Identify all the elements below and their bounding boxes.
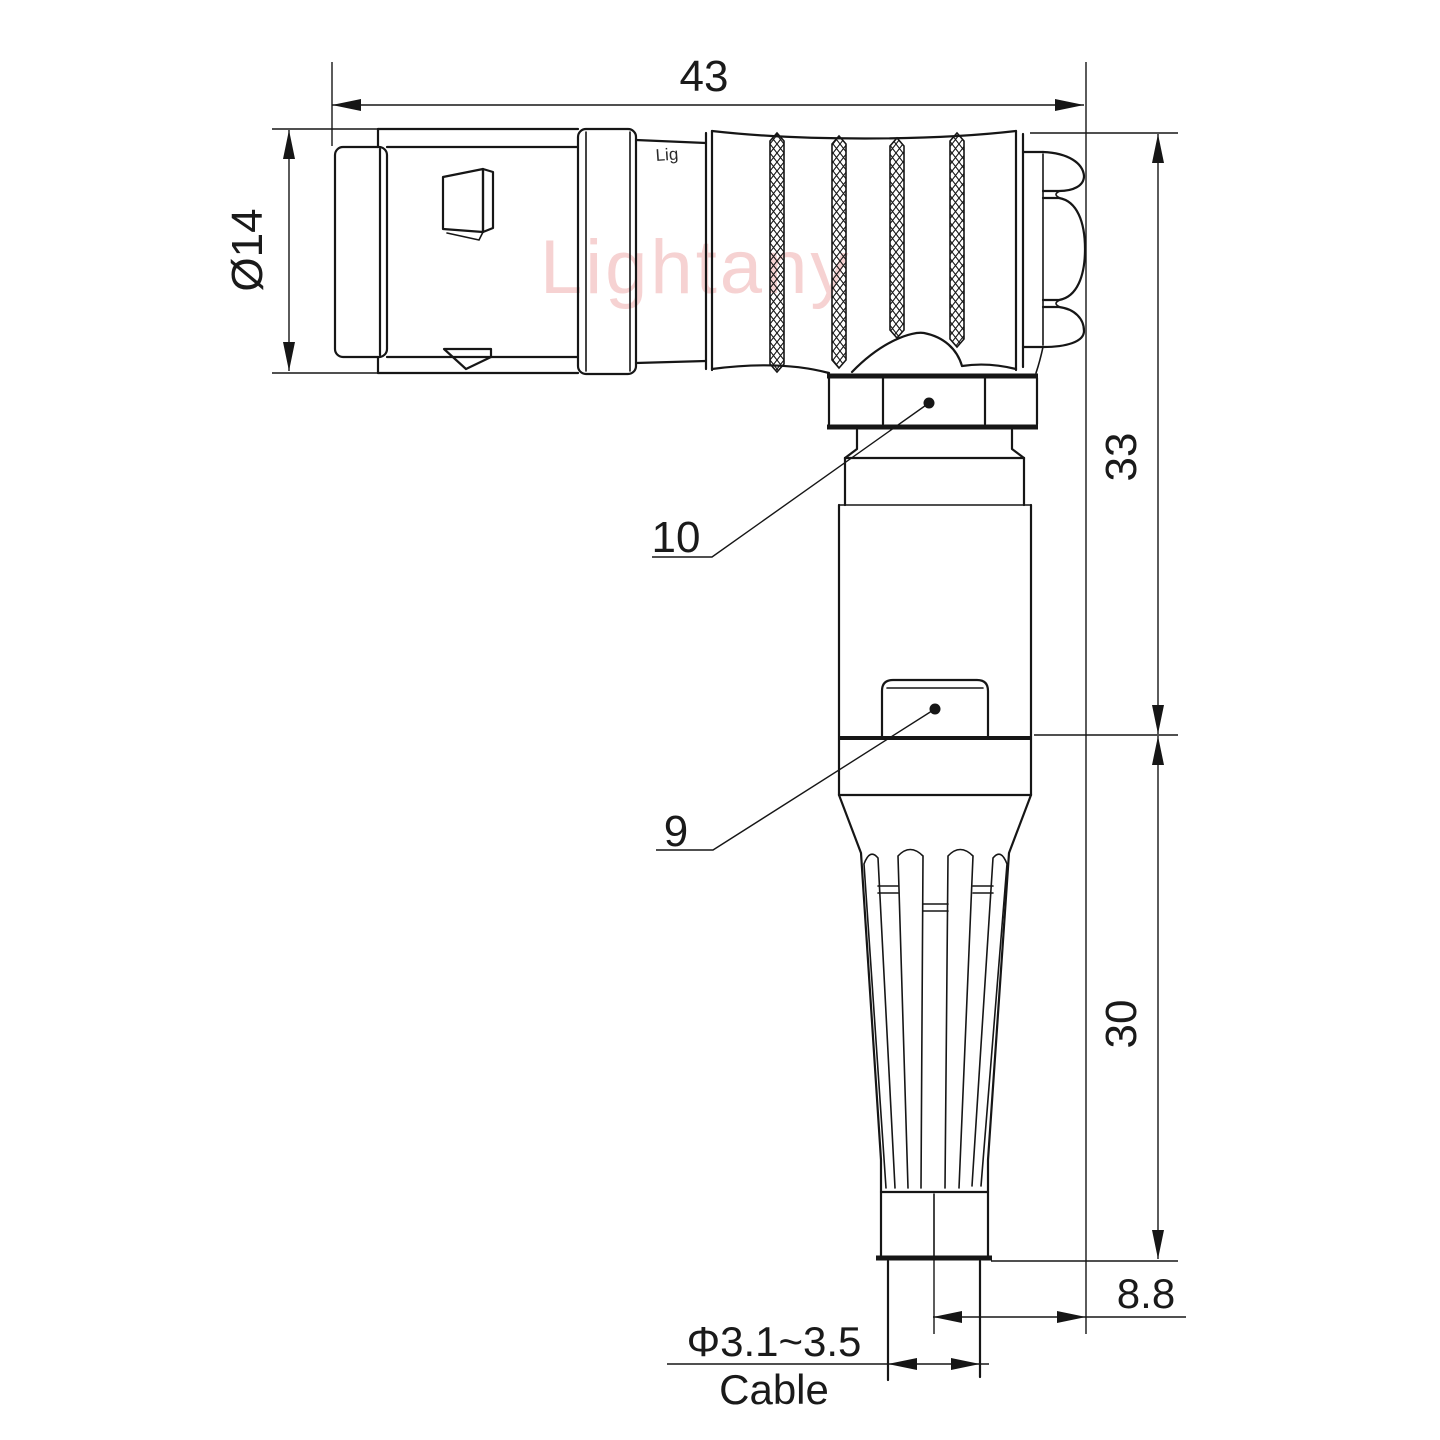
strain-relief bbox=[839, 795, 1031, 1380]
dim-front-diameter: Ø14 bbox=[223, 129, 378, 373]
dim-label-cable-diameter: Φ3.1~3.5 bbox=[687, 1318, 862, 1365]
leader-line bbox=[656, 709, 935, 850]
callout-9: 9 bbox=[656, 704, 941, 857]
arrowhead bbox=[1152, 736, 1164, 765]
dim-upper-height: 33 bbox=[1030, 133, 1178, 735]
extension-lines bbox=[272, 129, 378, 373]
knurl-band bbox=[950, 133, 964, 347]
dim-label-33: 33 bbox=[1097, 433, 1146, 482]
dim-lower-height: 30 bbox=[991, 736, 1178, 1261]
arrowhead bbox=[283, 342, 295, 371]
head-right-rim bbox=[1016, 131, 1023, 370]
knurl-band bbox=[890, 138, 904, 338]
callout-label-10: 10 bbox=[652, 513, 701, 562]
callout-10: 10 bbox=[652, 398, 935, 563]
arrowhead bbox=[1152, 1230, 1164, 1259]
arrowhead bbox=[1152, 705, 1164, 734]
connector-dimension-drawing: Lightany Lig bbox=[0, 0, 1440, 1440]
dim-label-30: 30 bbox=[1097, 1000, 1146, 1049]
elbow-lower-body bbox=[827, 376, 1038, 795]
arrowhead bbox=[951, 1358, 980, 1370]
part-logo-mark: Lig bbox=[655, 144, 679, 165]
boot-collar bbox=[876, 1192, 992, 1258]
arrowhead bbox=[283, 130, 295, 159]
technical-drawing-page: Lightany Lig bbox=[0, 0, 1440, 1440]
elbow-shoulder bbox=[852, 333, 962, 372]
boot-outer-right bbox=[988, 795, 1031, 1192]
arrowhead bbox=[1055, 99, 1084, 111]
head-bottom-left-edge bbox=[712, 365, 829, 373]
arrowhead bbox=[332, 99, 361, 111]
arrowhead bbox=[1057, 1311, 1086, 1323]
dim-cable-diameter: Φ3.1~3.5 Cable bbox=[667, 1318, 989, 1413]
knurl-band bbox=[770, 133, 784, 372]
knurl-band bbox=[832, 136, 846, 368]
latch-wedge bbox=[444, 349, 491, 369]
callout-label-9: 9 bbox=[664, 807, 688, 856]
dim-label-diameter14: Ø14 bbox=[223, 208, 272, 291]
boot-fins bbox=[864, 850, 1007, 1189]
dim-label-8-8: 8.8 bbox=[1117, 1270, 1175, 1317]
latch-tab bbox=[443, 169, 493, 240]
arrowhead bbox=[888, 1358, 917, 1370]
head-top-edge bbox=[712, 131, 1016, 139]
back-nut bbox=[1023, 152, 1085, 373]
dim-back-offset: 8.8 bbox=[933, 1259, 1186, 1334]
arrowhead bbox=[933, 1311, 962, 1323]
head-bottom-right-edge bbox=[962, 365, 1016, 369]
arrowhead bbox=[1152, 134, 1164, 163]
cable-label: Cable bbox=[719, 1366, 829, 1413]
dim-label-43: 43 bbox=[680, 52, 729, 101]
upper-sleeve bbox=[845, 458, 1024, 505]
